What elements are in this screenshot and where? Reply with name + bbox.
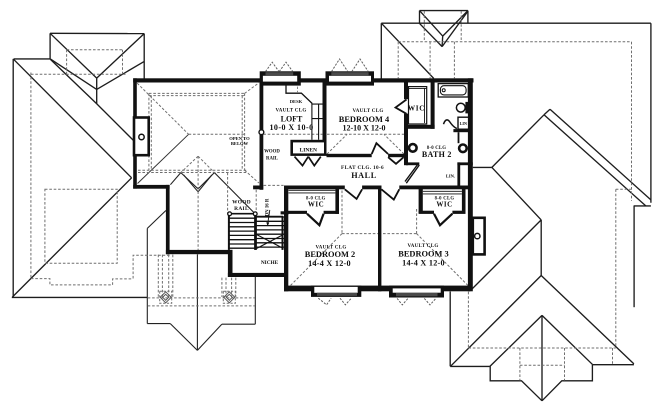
svg-text:14-4 X 12-0: 14-4 X 12-0 <box>402 258 445 267</box>
svg-text:BEDROOM 2: BEDROOM 2 <box>305 250 355 259</box>
svg-text:WOOD: WOOD <box>232 200 251 206</box>
svg-text:RAIL: RAIL <box>234 206 249 212</box>
svg-text:WIC: WIC <box>408 105 425 113</box>
svg-text:BATH 2: BATH 2 <box>422 150 452 159</box>
svg-text:RAIL: RAIL <box>266 156 278 161</box>
svg-text:10-0 X 10-0: 10-0 X 10-0 <box>269 123 313 132</box>
svg-text:FLAT CLG. 10-6: FLAT CLG. 10-6 <box>341 165 384 171</box>
svg-text:BELOW: BELOW <box>231 141 249 146</box>
svg-text:12-10 X 12-0: 12-10 X 12-0 <box>342 123 385 132</box>
svg-text:LIN: LIN <box>460 121 467 126</box>
svg-text:DN 16 R: DN 16 R <box>266 198 271 216</box>
svg-text:LOFT: LOFT <box>281 114 303 123</box>
svg-text:WIC: WIC <box>308 201 324 209</box>
svg-text:NICHE: NICHE <box>261 260 279 266</box>
svg-text:VAULT CLG: VAULT CLG <box>352 109 383 114</box>
svg-text:WOOD: WOOD <box>264 150 280 155</box>
svg-text:DESK: DESK <box>290 99 303 104</box>
svg-text:LINEN: LINEN <box>300 147 317 153</box>
svg-text:HALL: HALL <box>351 171 377 180</box>
svg-text:LIN.: LIN. <box>446 174 455 179</box>
svg-text:WIC: WIC <box>436 201 452 209</box>
svg-text:14-4 X 12-0: 14-4 X 12-0 <box>308 259 351 268</box>
svg-text:VAULT CLG: VAULT CLG <box>407 244 438 249</box>
svg-text:BEDROOM 3: BEDROOM 3 <box>398 249 448 258</box>
svg-text:VAULT CLG: VAULT CLG <box>275 108 306 113</box>
